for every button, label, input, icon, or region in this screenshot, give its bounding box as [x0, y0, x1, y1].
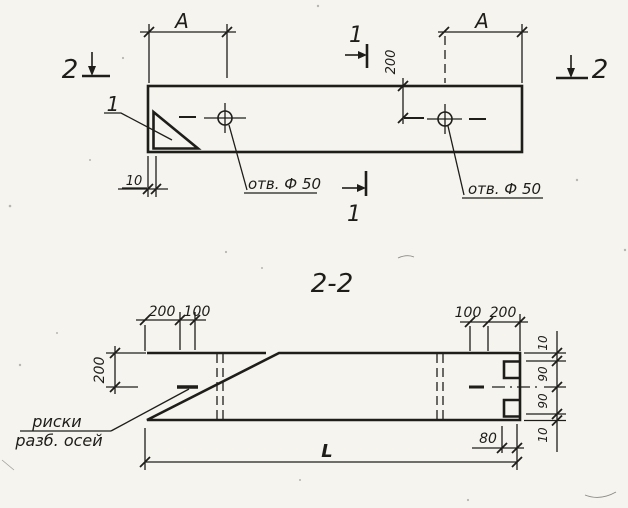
- dim-100-top-right: 100: [455, 305, 482, 321]
- dim-a-left: A: [140, 9, 236, 83]
- paper-noise: [2, 5, 626, 501]
- dims-top-left: 200 100: [136, 304, 210, 351]
- hole-callout-right-label: отв. Ф 50: [468, 180, 541, 198]
- section-view: 2-2 200 100 200: [14, 269, 566, 470]
- beam-outline-plan: [148, 86, 522, 152]
- section-mark-1-top: 1: [345, 23, 367, 68]
- dim-90-lower-label: 90: [536, 393, 550, 409]
- section-title: 2-2: [311, 269, 353, 299]
- dim-100-top-left: 100: [184, 304, 211, 320]
- dim-height-left: 200: [92, 346, 146, 394]
- technical-drawing: 1 A: [0, 0, 628, 508]
- hole-callout-left-label: отв. Ф 50: [248, 175, 321, 193]
- notch-upper: [504, 362, 520, 379]
- dim-200-top-left: 200: [149, 304, 176, 320]
- dim-a-left-label: A: [173, 9, 189, 33]
- detail-1-label: 1: [107, 92, 120, 116]
- dim-length: L: [140, 428, 522, 470]
- hole-left: [179, 103, 246, 133]
- notch-lower: [504, 400, 520, 417]
- dim-10-plan-label: 10: [126, 174, 143, 189]
- dim-10-bottom-label: 10: [536, 427, 550, 443]
- hole-callout-right: отв. Ф 50: [448, 126, 543, 198]
- axis-note-line2: разб. осей: [14, 431, 102, 450]
- section-mark-2-right: 2: [556, 55, 608, 85]
- axis-note-line1: риски: [31, 412, 81, 431]
- dim-height-label: 200: [92, 357, 108, 384]
- dim-10-top-label: 10: [536, 335, 550, 351]
- hole-callout-left: отв. Ф 50: [229, 125, 321, 193]
- axis-note-leader: [111, 389, 189, 431]
- section-mark-1-bottom: 1: [342, 171, 366, 227]
- detail-1-leader: [104, 113, 172, 140]
- dim-a-right-label: A: [473, 9, 489, 33]
- dims-top-right: 100 200: [455, 305, 528, 351]
- dim-80-label: 80: [479, 431, 497, 447]
- dim-200-top-right: 200: [490, 305, 517, 321]
- section-mark-2-left: 2: [62, 52, 110, 85]
- section-1-bottom-label: 1: [347, 202, 361, 227]
- dim-a-right: A: [438, 9, 528, 83]
- section-2-left-label: 2: [62, 55, 79, 85]
- dim-90-upper-label: 90: [536, 366, 550, 382]
- dim-10-plan: 10: [118, 156, 168, 197]
- hole-right: [404, 104, 486, 134]
- dim-length-label: L: [321, 441, 332, 462]
- beam-outline-section: [147, 353, 520, 420]
- dims-right-chain: 10 90 90 10: [524, 331, 566, 452]
- dim-200-plan-label: 200: [384, 50, 399, 75]
- plan-view: 1 A: [62, 9, 609, 227]
- section-2-right-label: 2: [592, 55, 609, 85]
- section-1-top-label: 1: [349, 23, 363, 48]
